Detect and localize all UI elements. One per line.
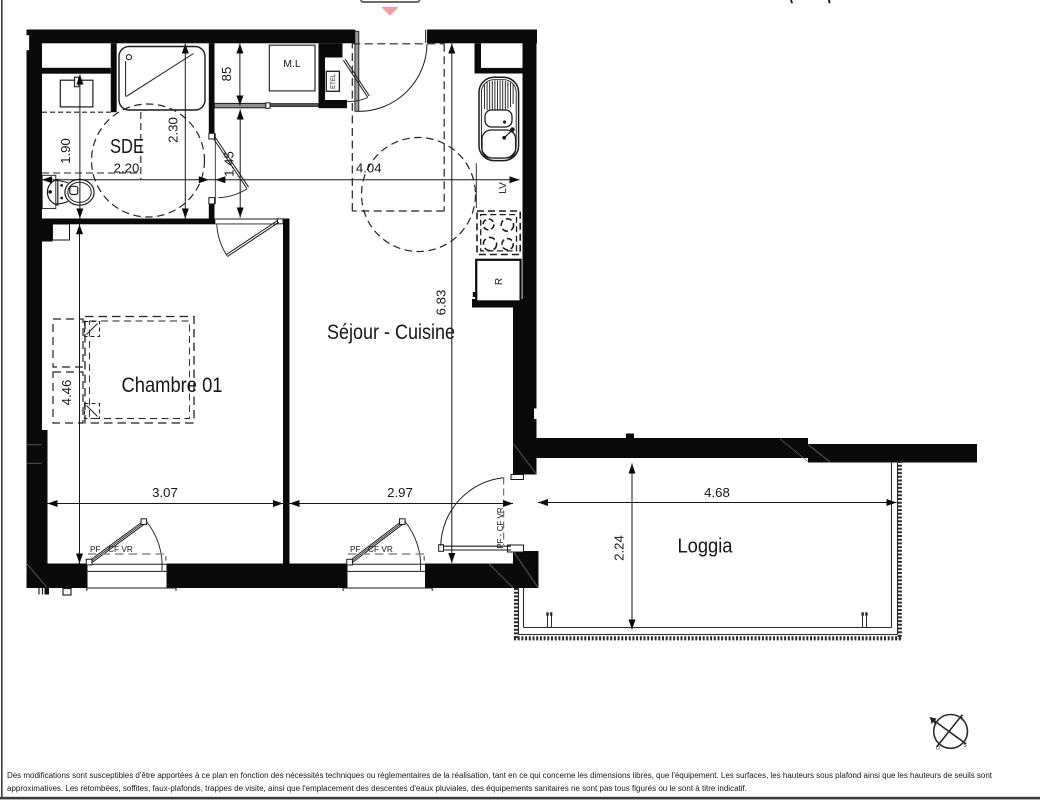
svg-text:LV: LV (498, 182, 509, 194)
svg-text:1.90: 1.90 (58, 138, 73, 164)
svg-text:2.97: 2.97 (387, 485, 413, 500)
svg-text:Des modifications sont suscept: Des modifications sont susceptibles d'êt… (7, 771, 993, 780)
svg-text:approximatives. Les retombées,: approximatives. Les retombées, soffites,… (7, 784, 747, 793)
svg-text:2.30: 2.30 (166, 117, 181, 143)
svg-text:Loggia: Loggia (678, 536, 734, 558)
svg-text:2.20: 2.20 (114, 160, 140, 175)
svg-text:SDE: SDE (110, 135, 144, 158)
svg-text:1.45: 1.45 (222, 151, 237, 177)
svg-text:4.04: 4.04 (356, 160, 382, 175)
svg-text:3.07: 3.07 (152, 485, 178, 500)
svg-text:PF - CF VR: PF - CF VR (350, 544, 393, 554)
svg-text:PF - CF VR: PF - CF VR (496, 507, 505, 549)
svg-text:R: R (494, 278, 505, 285)
svg-text:PF - CF VR: PF - CF VR (90, 544, 133, 554)
svg-text:4.68: 4.68 (704, 485, 730, 500)
svg-text:6.83: 6.83 (434, 290, 449, 316)
svg-text:ETEL: ETEL (331, 73, 337, 89)
svg-text:O: O (936, 746, 940, 752)
svg-text:85: 85 (219, 67, 234, 82)
svg-text:Chambre 01: Chambre 01 (122, 374, 223, 397)
svg-text:Séjour - Cuisine: Séjour - Cuisine (327, 321, 455, 344)
svg-text:4.46: 4.46 (59, 380, 74, 406)
svg-text:M.L: M.L (283, 58, 301, 70)
svg-text:2.24: 2.24 (612, 535, 627, 561)
